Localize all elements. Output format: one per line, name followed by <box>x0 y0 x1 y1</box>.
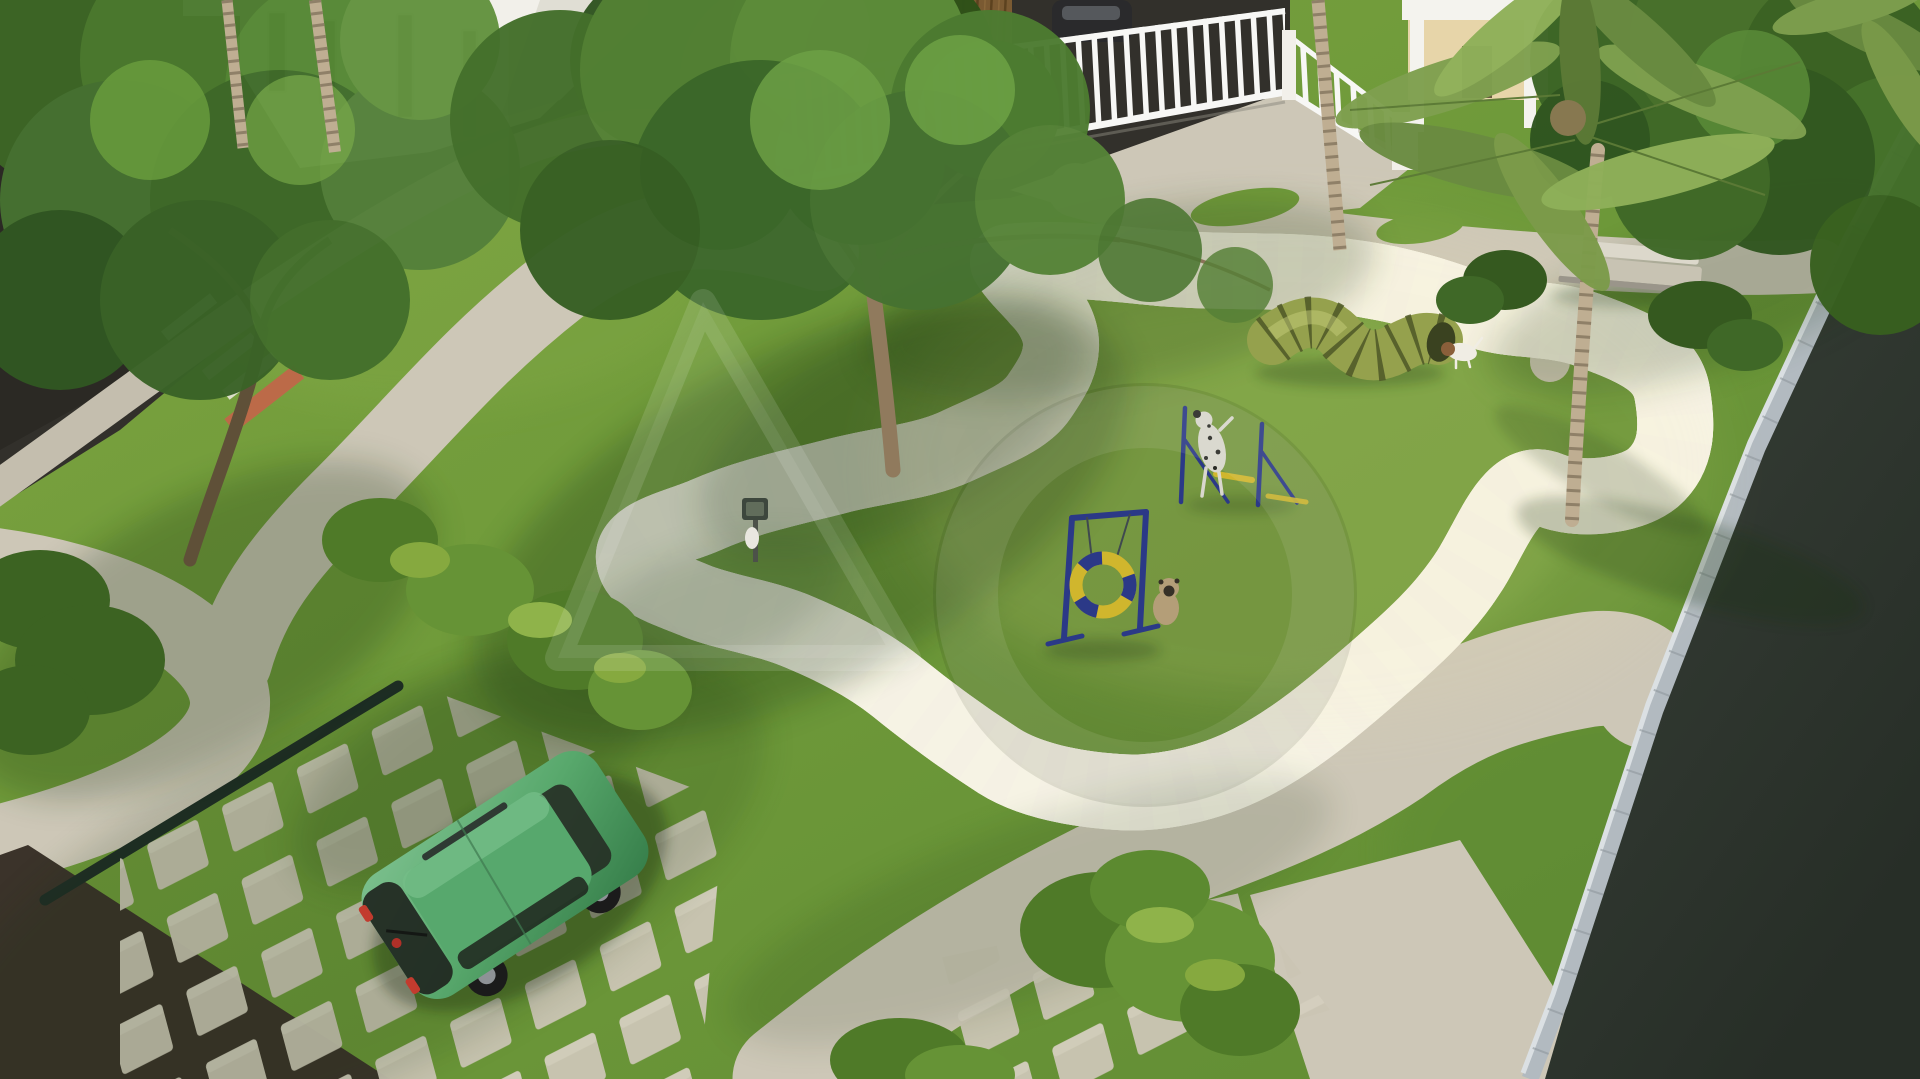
render-image <box>0 0 1920 1079</box>
